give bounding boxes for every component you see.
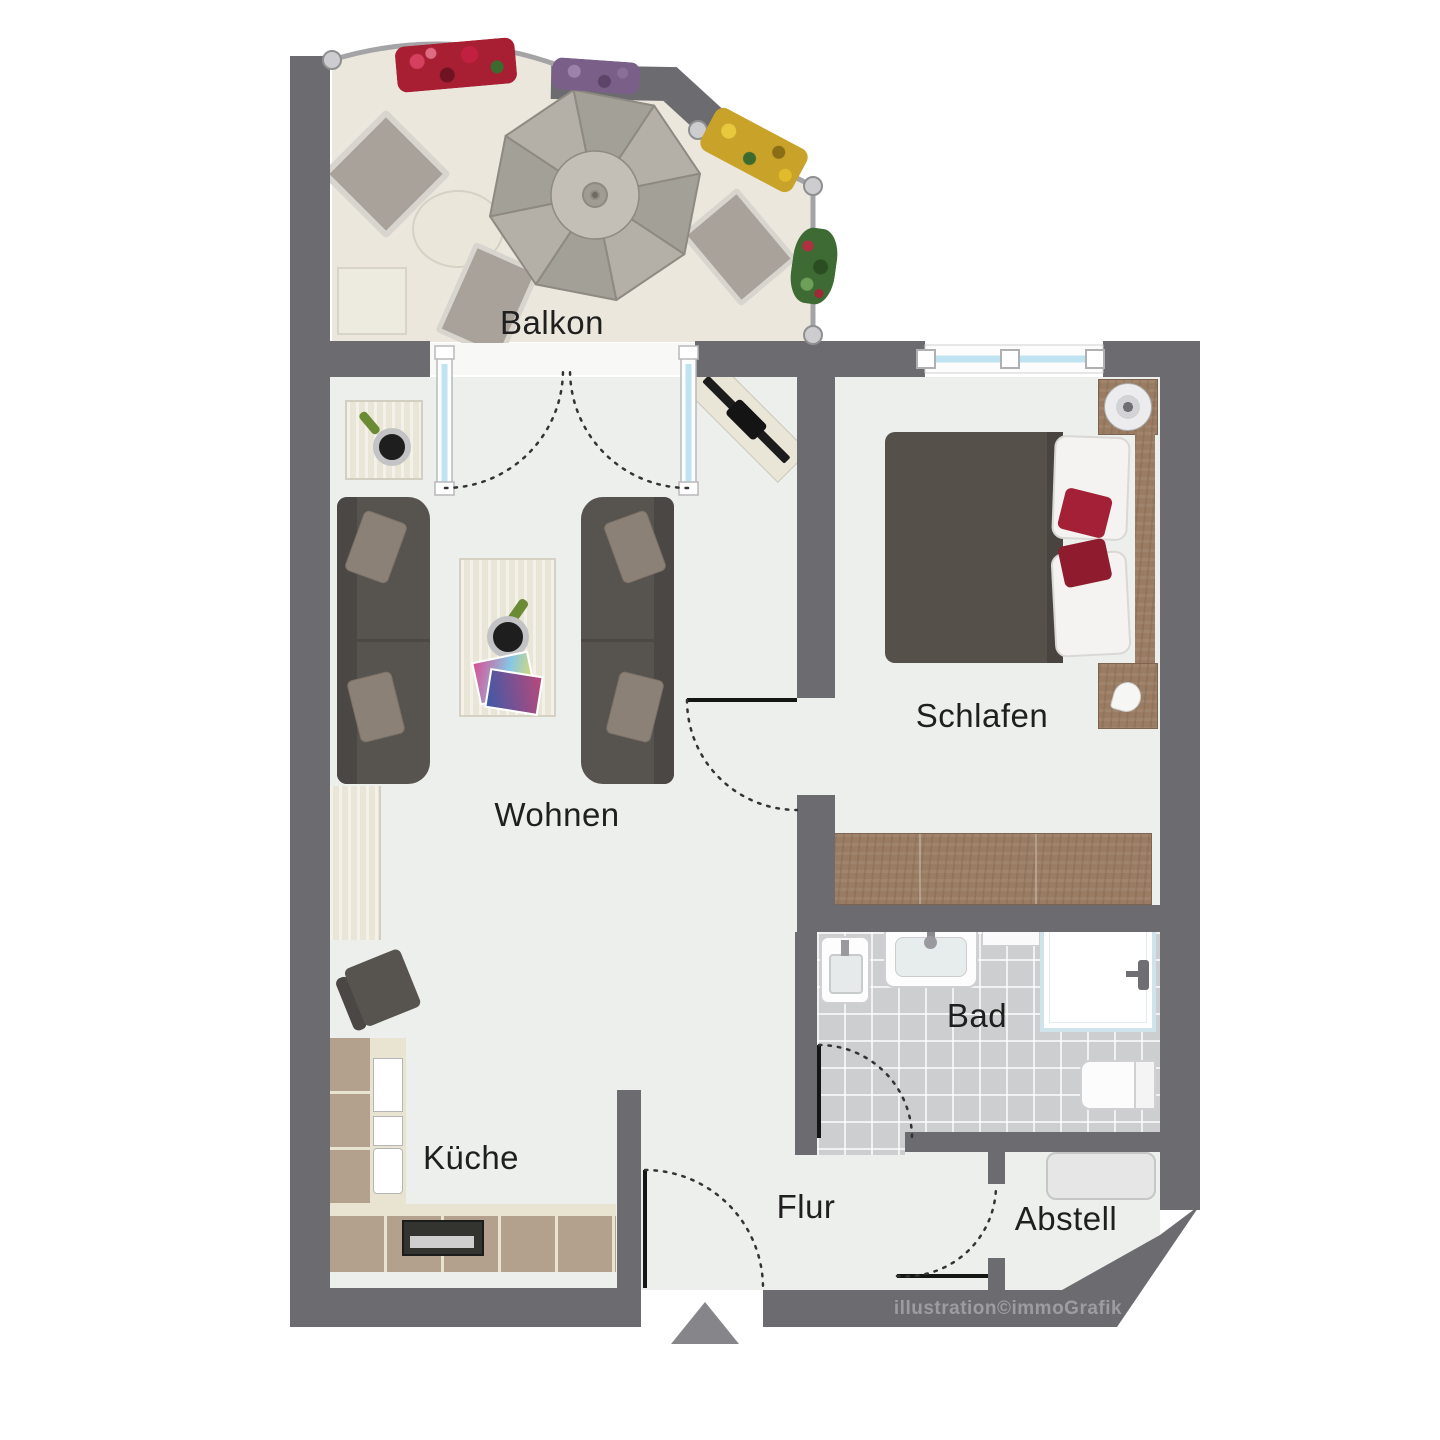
floorplan-canvas: Balkon Wohnen Schlafen Küche Bad Flur Ab… xyxy=(0,0,1440,1440)
room-label-bad: Bad xyxy=(947,997,1007,1035)
flower-box-yellow xyxy=(697,104,811,195)
watermark: illustration©immoGrafik xyxy=(894,1298,1122,1320)
room-label-kueche: Küche xyxy=(423,1139,519,1177)
room-label-abstell: Abstell xyxy=(1015,1200,1118,1238)
flower-box-purple xyxy=(551,57,641,95)
entrance-arrow-icon xyxy=(671,1302,739,1344)
annotation-layer: Balkon Wohnen Schlafen Küche Bad Flur Ab… xyxy=(0,0,1440,1440)
flower-box-red xyxy=(394,37,518,93)
room-label-schlafen: Schlafen xyxy=(916,697,1048,735)
climbing-plant xyxy=(787,225,841,306)
room-label-flur: Flur xyxy=(777,1188,836,1226)
room-label-wohnen: Wohnen xyxy=(494,796,619,834)
room-label-balkon: Balkon xyxy=(500,304,604,342)
